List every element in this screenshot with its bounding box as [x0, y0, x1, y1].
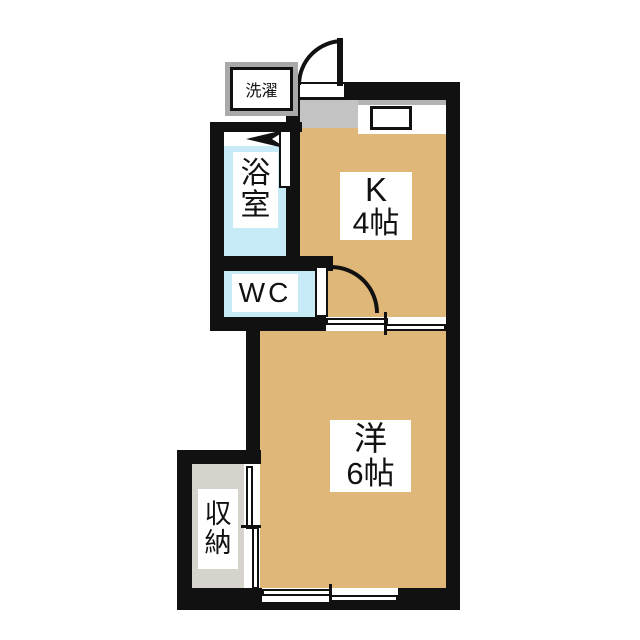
storage-door-tick [241, 525, 261, 528]
door-swing-overlay [0, 0, 640, 640]
window-bottom-panel-right [330, 595, 398, 602]
kitchen-label: K 4帖 [340, 172, 412, 240]
bath-door-leaf [279, 130, 292, 188]
slider-kitchen-western-panel-right [384, 324, 446, 331]
storage-door-panel-bottom [252, 527, 259, 589]
storage-label: 収 納 [198, 489, 238, 569]
bath-label-line1: 浴 [241, 158, 271, 190]
wc-door-leaf [315, 266, 328, 317]
western-room-label-line2: 6帖 [346, 457, 394, 490]
wc-label: WC [232, 274, 298, 312]
kitchen-label-line2: 4帖 [353, 208, 400, 240]
western-room-label: 洋 6帖 [330, 420, 411, 492]
slider-kitchen-western-panel-left [326, 318, 388, 325]
wc-label-text: WC [239, 278, 292, 308]
window-bottom-panel-left [262, 589, 332, 596]
washer-label: 洗濯 [230, 67, 293, 111]
floorplan-canvas: 洗濯 浴 室 WC K 4帖 洋 6帖 収 納 [0, 0, 640, 640]
storage-door-panel-top [246, 466, 253, 529]
washer-label-text: 洗濯 [245, 77, 277, 101]
entrance-door-swing [299, 41, 343, 85]
wc-door-swing [331, 267, 377, 313]
washer-box: 洗濯 [225, 62, 298, 116]
western-room-label-line1: 洋 [354, 421, 387, 457]
bath-label: 浴 室 [233, 152, 278, 228]
slider-kitchen-western-tick [384, 312, 387, 335]
storage-label-line2: 納 [205, 529, 232, 558]
window-bottom-tick [329, 584, 332, 606]
kitchen-label-line1: K [365, 172, 387, 208]
bath-label-line2: 室 [241, 190, 271, 222]
storage-label-line1: 収 [205, 500, 232, 529]
